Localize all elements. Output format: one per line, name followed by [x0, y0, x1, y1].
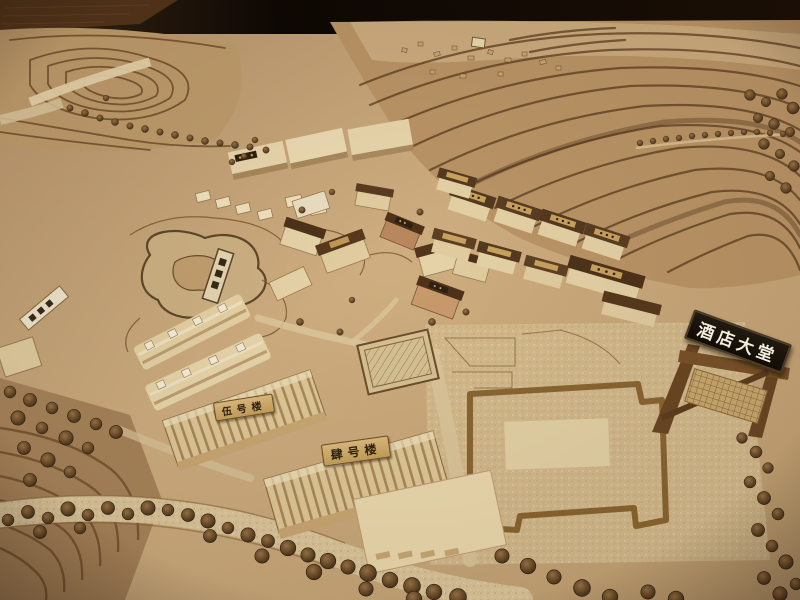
vignette — [0, 0, 800, 600]
architectural-model-photo: 酒店大堂 伍号楼 肆号楼 — [0, 0, 800, 600]
model-scene — [0, 0, 800, 600]
